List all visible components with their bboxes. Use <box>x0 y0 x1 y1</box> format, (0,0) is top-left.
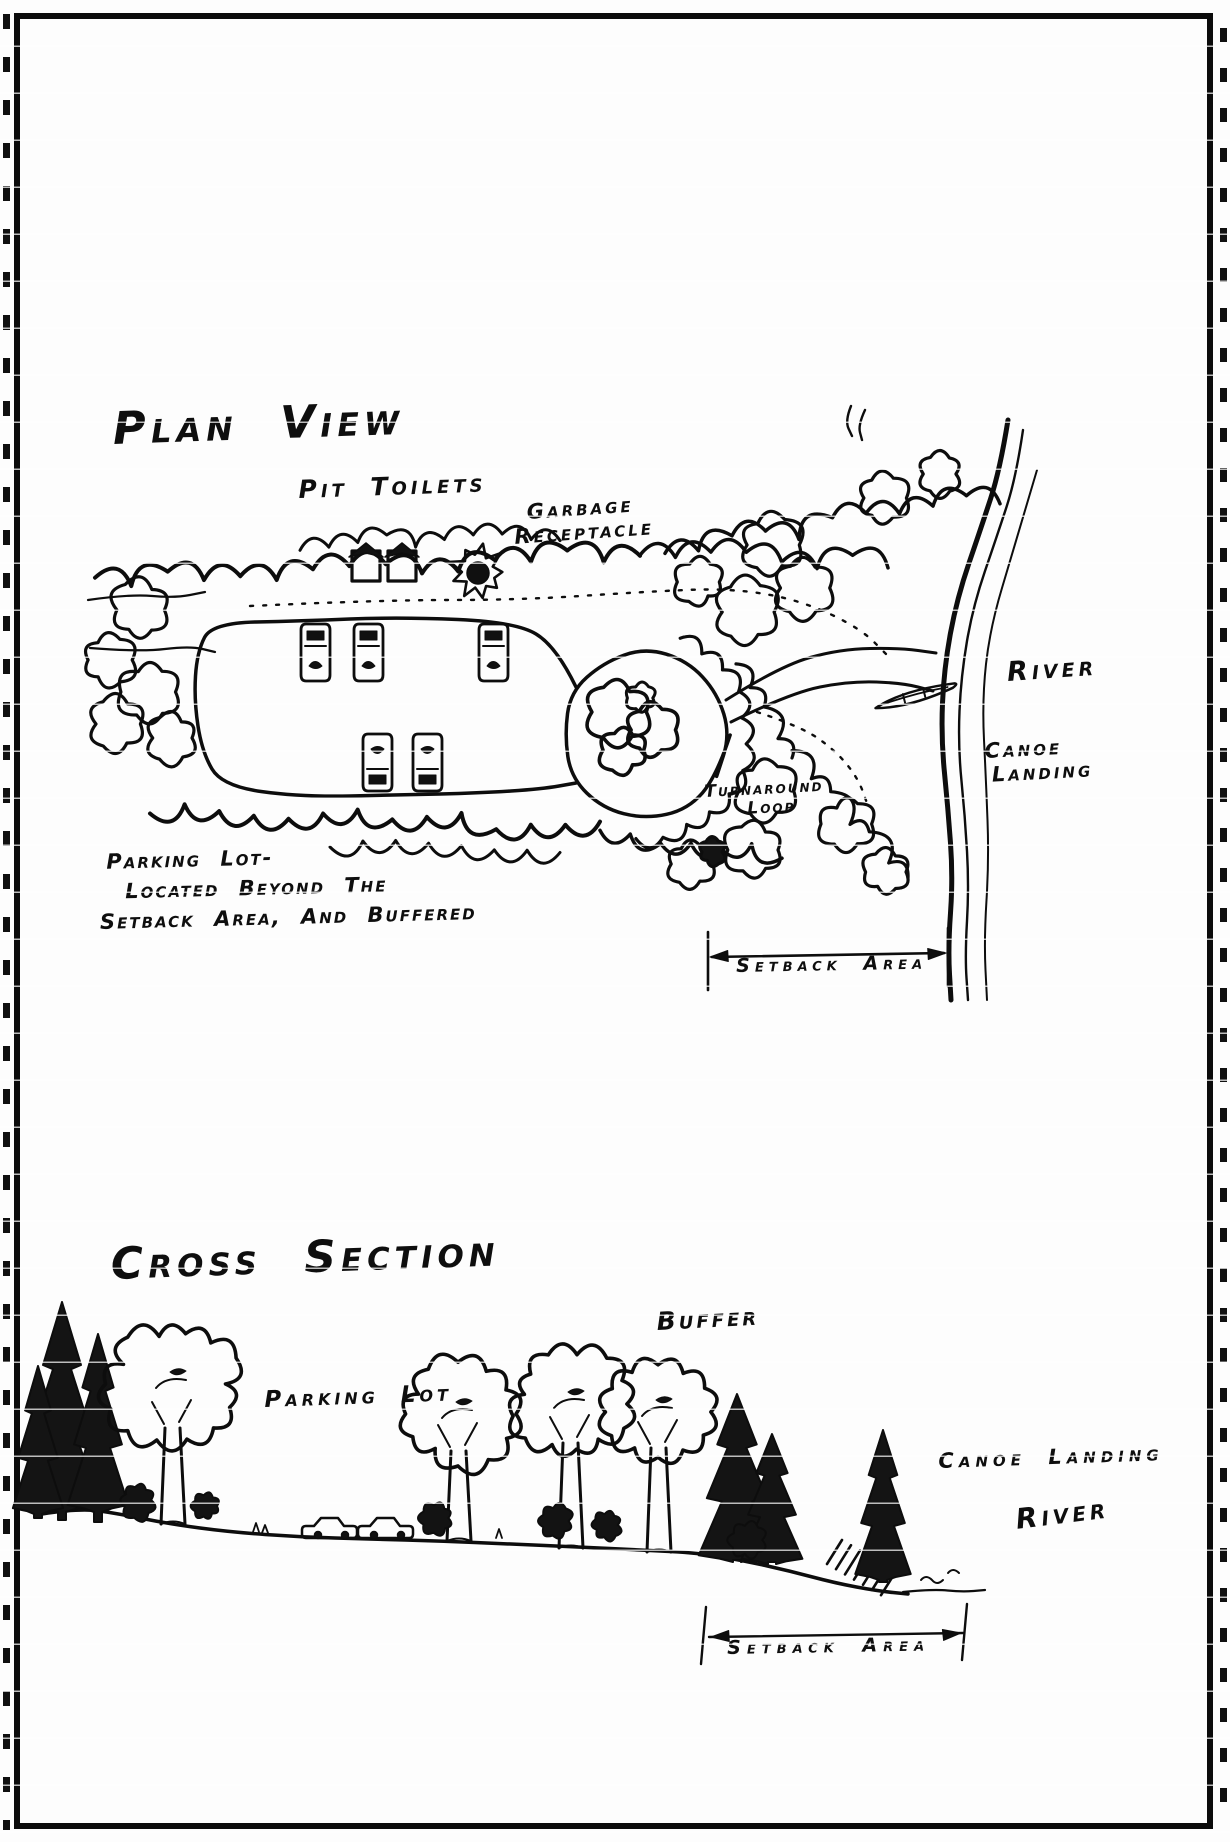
cross-cars <box>302 1518 413 1539</box>
parking-lot-note: Parking Lot- Located Beyond The Setback … <box>98 838 477 937</box>
turnaround-loop-label: Turnaround Loop <box>704 777 825 821</box>
buffer-label: Buffer <box>656 1303 760 1336</box>
cross-trees <box>13 1302 911 1582</box>
turnaround-loop-label-line2: Loop <box>747 796 825 819</box>
garbage-receptacle-label: Garbage Receptacle <box>512 492 655 549</box>
cross-setback-area-label: Setback Area <box>727 1634 930 1659</box>
plan-river <box>847 406 1037 1000</box>
site-plan-sketch-page: Plan View Pit Toilets Garbage Receptacle… <box>0 0 1230 1842</box>
plan-parking-lot <box>195 618 576 796</box>
plan-canoe-landing-label: Canoe Landing <box>984 734 1094 787</box>
plan-view-title: Plan View <box>112 394 405 455</box>
plan-setback-area-label: Setback Area <box>736 953 927 978</box>
plan-paths <box>250 590 936 807</box>
plan-river-label: River <box>1006 652 1098 688</box>
